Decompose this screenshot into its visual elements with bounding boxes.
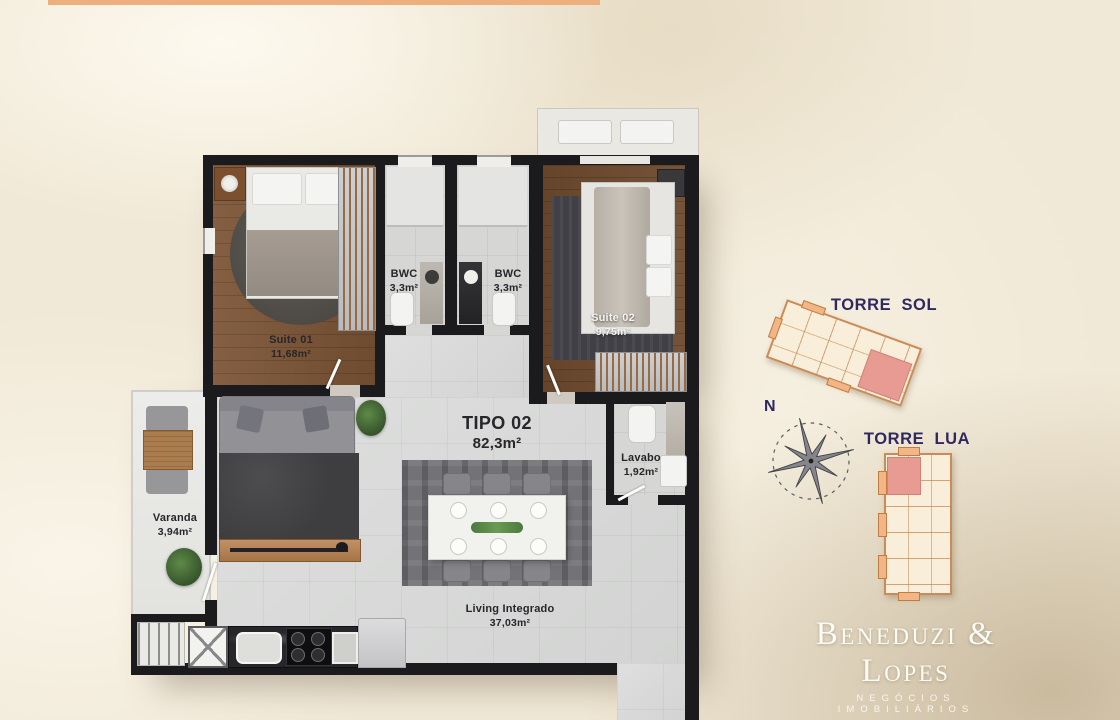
bwc2-sink xyxy=(464,270,478,284)
laundry-rack xyxy=(137,622,185,666)
balcony-unit-left xyxy=(558,120,612,144)
suite02-wardrobe xyxy=(595,352,687,392)
torre-lua-plan xyxy=(884,453,952,595)
suite02-pillow xyxy=(646,267,672,297)
dining-chair xyxy=(443,560,471,582)
suite01-pillow xyxy=(252,173,302,205)
bwc2-shower xyxy=(459,167,527,227)
unit-area: 82,3m² xyxy=(462,435,532,454)
suite01-lamp xyxy=(221,175,238,192)
torre-lua-balcony-stub xyxy=(878,555,887,579)
suite01-area: 11,68m² xyxy=(269,348,313,361)
living-area: 37,03m² xyxy=(466,617,555,630)
torre-lua-balcony-stub xyxy=(878,513,887,537)
bwc2-name: BWC xyxy=(495,268,522,280)
bwc2-toilet xyxy=(492,292,516,326)
wall-varanda-living-upper xyxy=(205,390,217,555)
tv-screen xyxy=(230,548,348,552)
living-rug xyxy=(219,453,359,539)
plate xyxy=(490,502,507,519)
table-centerpiece xyxy=(471,522,523,533)
bwc1-label: BWC 3,3m² xyxy=(390,268,418,295)
lavabo-toilet xyxy=(628,405,656,443)
living-plant xyxy=(356,400,386,436)
lavabo-sink xyxy=(660,455,687,487)
cat xyxy=(336,542,348,552)
torre-lua-balcony-stub xyxy=(878,471,887,495)
cooktop xyxy=(286,628,332,666)
burner xyxy=(311,648,325,662)
wall-bwc2-suite02 xyxy=(529,165,543,404)
lavabo-label: Lavabo 1,92m² xyxy=(621,452,661,479)
suite01-nightstand xyxy=(214,167,246,201)
tv-bench xyxy=(219,539,361,562)
bwc1-area: 3,3m² xyxy=(390,282,418,295)
dining-chair xyxy=(523,473,551,495)
varanda-table xyxy=(143,430,193,470)
bwc2-label: BWC 3,3m² xyxy=(494,268,522,295)
brand-name: Beneduzi & Lopes xyxy=(799,616,1013,690)
dining-chair xyxy=(483,560,511,582)
suite02-blanket xyxy=(594,187,650,327)
compass: N xyxy=(756,398,868,516)
window-left-suite01 xyxy=(203,228,215,254)
suite01-label: Suite 01 11,68m² xyxy=(269,334,313,361)
burner xyxy=(291,632,305,646)
plate xyxy=(450,502,467,519)
varanda-chair-bottom xyxy=(146,468,188,494)
burner xyxy=(291,648,305,662)
wall-varanda-laundry xyxy=(131,614,209,622)
lavabo-area: 1,92m² xyxy=(621,466,661,479)
fridge xyxy=(358,618,406,668)
suite01-wardrobe xyxy=(338,167,376,331)
torre-lua-highlight-unit xyxy=(887,457,921,495)
living-label: Living Integrado 37,03m² xyxy=(466,603,555,630)
torre-lua-balcony-stub xyxy=(898,592,920,601)
prep-sink xyxy=(332,632,358,664)
lavabo-vanity xyxy=(666,402,685,460)
wall-suite01-bwc1 xyxy=(375,165,385,397)
bwc2-area: 3,3m² xyxy=(494,282,522,295)
door-gap-bwc2 xyxy=(484,325,510,335)
torre-sol-label: TORRE SOL xyxy=(831,296,937,315)
bwc1-name: BWC xyxy=(391,268,418,280)
bwc1-vanity xyxy=(420,262,443,324)
shaft-box xyxy=(188,626,228,668)
plate xyxy=(450,538,467,555)
dining-table xyxy=(428,495,566,560)
varanda-label: Varanda 3,94m² xyxy=(153,512,197,539)
bwc1-sink xyxy=(425,270,439,284)
window-top-suite02 xyxy=(580,156,650,164)
suite02-pillow xyxy=(646,235,672,265)
unit-type: TIPO 02 xyxy=(462,413,532,433)
door-gap-bwc1 xyxy=(406,325,432,335)
varanda-chair-top xyxy=(146,406,188,432)
brand-tagline: NEGÓCIOS IMOBILIÁRIOS xyxy=(799,693,1013,715)
bwc2-vanity xyxy=(459,262,482,324)
torre-lua-balcony-stub xyxy=(898,447,920,456)
varanda-plant xyxy=(166,548,202,586)
plate xyxy=(530,502,547,519)
suite02-label: Suite 02 9,75m² xyxy=(591,312,635,339)
dining-chair xyxy=(523,560,551,582)
kitchen-sink xyxy=(236,632,282,664)
suite02-area: 9,75m² xyxy=(591,326,635,339)
door-gap-lavabo xyxy=(628,495,658,505)
plate xyxy=(530,538,547,555)
varanda-name: Varanda xyxy=(153,512,197,524)
plate xyxy=(490,538,507,555)
bwc1-toilet xyxy=(390,292,414,326)
dining-chair xyxy=(443,473,471,495)
varanda-area: 3,94m² xyxy=(153,526,197,539)
unit-type-label: TIPO 02 82,3m² xyxy=(462,412,532,453)
bwc1-shower xyxy=(387,167,443,227)
window-top-bwc2 xyxy=(477,155,511,167)
wall-left-upper xyxy=(203,155,213,397)
wall-bwc1-bwc2 xyxy=(445,165,457,335)
floor-plan: Suite 01 11,68m² BWC 3,3m² BWC 3,3m² Sui… xyxy=(0,0,1120,720)
living-name: Living Integrado xyxy=(466,603,555,615)
torre-sol-highlight-unit xyxy=(857,349,912,402)
suite02-name: Suite 02 xyxy=(591,312,635,324)
flyer-canvas: Suite 01 11,68m² BWC 3,3m² BWC 3,3m² Sui… xyxy=(0,0,1120,720)
brand-logo: Beneduzi & Lopes NEGÓCIOS IMOBILIÁRIOS C… xyxy=(799,616,1013,720)
dining-chair xyxy=(483,473,511,495)
wall-lavabo-left xyxy=(606,402,614,505)
wall-right xyxy=(685,155,699,720)
burner xyxy=(311,632,325,646)
window-top-bwc1 xyxy=(398,155,432,167)
compass-rose-icon xyxy=(756,406,866,516)
lavabo-name: Lavabo xyxy=(621,452,661,464)
entry-strip-floor xyxy=(617,663,685,720)
balcony-unit-right xyxy=(620,120,674,144)
sofa-pillow xyxy=(236,405,264,433)
hall-floor xyxy=(385,335,529,399)
sofa-pillow xyxy=(302,405,330,433)
suite01-name: Suite 01 xyxy=(269,334,313,346)
